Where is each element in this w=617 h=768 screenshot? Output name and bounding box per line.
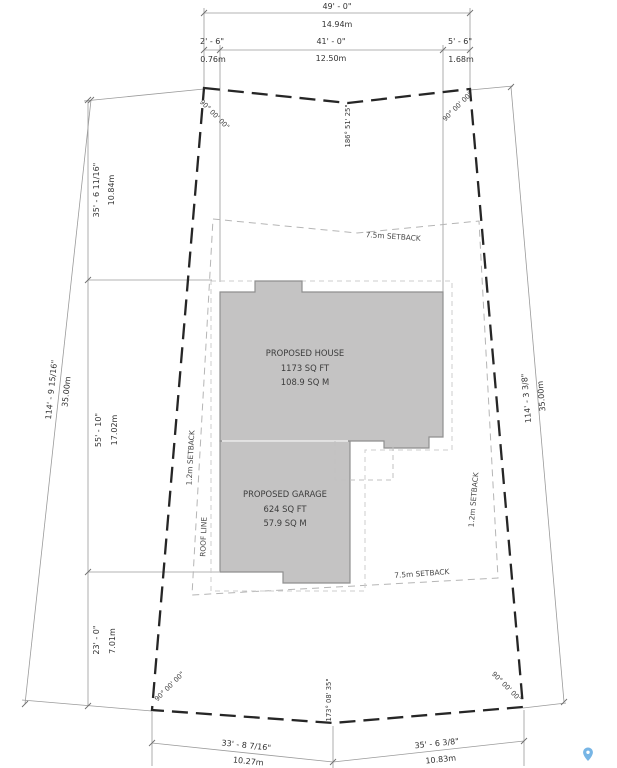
dim-top-seg-mid-m: 12.50m	[316, 54, 347, 63]
ext-line-right-top	[470, 86, 513, 90]
ext-line-left-top	[84, 89, 204, 101]
dim-left-lower-ft: 23' - 0"	[92, 625, 101, 654]
setback-label-rear: 7.5m SETBACK	[394, 567, 450, 580]
dim-line-left-overall	[25, 100, 91, 704]
garage-area-ft: 624 SQ FT	[263, 504, 307, 514]
angle-bottom-middle: 173° 08' 35"	[325, 679, 333, 722]
dim-left-upper-m: 10.84m	[107, 174, 116, 205]
angle-top-right: 90° 00' 00"	[441, 90, 474, 123]
dim-bottom-left-ft: 33' - 8 7/16"	[221, 738, 271, 752]
dim-top-seg-right-m: 1.68m	[448, 55, 474, 64]
angle-bottom-left: 90° 00' 00"	[153, 670, 186, 703]
dim-left-overall-m: 35.00m	[60, 376, 72, 408]
dim-top-overall-ft: 49' - 0"	[322, 2, 351, 11]
house-name: PROPOSED HOUSE	[266, 348, 344, 358]
dim-left-mid-m: 17.02m	[110, 414, 119, 445]
setback-label-left: 1.2m SETBACK	[185, 430, 197, 486]
setback-label-front: 7.5m SETBACK	[365, 230, 421, 243]
dim-top-seg-mid-ft: 41' - 0"	[316, 37, 345, 46]
angle-top-middle: 186° 51' 25"	[344, 105, 352, 148]
angle-bottom-right: 90° 00' 00"	[490, 670, 523, 703]
garage-name: PROPOSED GARAGE	[243, 489, 327, 499]
dim-top-seg-left-ft: 2' - 6"	[200, 37, 224, 46]
dim-right-overall-ft: 114' - 3 3/8"	[520, 373, 533, 423]
site-plan-drawing: 49' - 0" 14.94m 2' - 6" 41' - 0" 5' - 6"…	[0, 0, 617, 768]
roof-line-label: ROOF LINE	[198, 517, 208, 557]
dim-top-overall-m: 14.94m	[322, 20, 353, 29]
dim-left-lower-m: 7.01m	[108, 628, 117, 654]
dim-right-overall-m: 35.00m	[536, 380, 548, 412]
setback-label-right: 1.2m SETBACK	[467, 472, 481, 528]
garage-area-m: 57.9 SQ M	[263, 518, 306, 528]
house-area-ft: 1173 SQ FT	[281, 363, 330, 373]
dim-bottom-right-m: 10.83m	[425, 753, 457, 765]
dim-top-seg-left-m: 0.76m	[200, 55, 226, 64]
house-footprint	[220, 281, 443, 448]
dim-left-upper-ft: 35' - 6 11/16"	[92, 163, 101, 218]
site-plan-sheet: 49' - 0" 14.94m 2' - 6" 41' - 0" 5' - 6"…	[0, 0, 617, 768]
map-pin-icon[interactable]	[583, 748, 593, 762]
dim-left-mid-ft: 55' - 10"	[94, 413, 103, 447]
house-area-m: 108.9 SQ M	[281, 377, 329, 387]
ext-line-right-bottom	[523, 703, 566, 708]
dim-top-seg-right-ft: 5' - 6"	[448, 37, 472, 46]
dim-bottom-right-ft: 35' - 6 3/8"	[414, 737, 459, 751]
dim-bottom-left-m: 10.27m	[233, 755, 265, 767]
ext-line-left-bottom	[22, 700, 152, 711]
